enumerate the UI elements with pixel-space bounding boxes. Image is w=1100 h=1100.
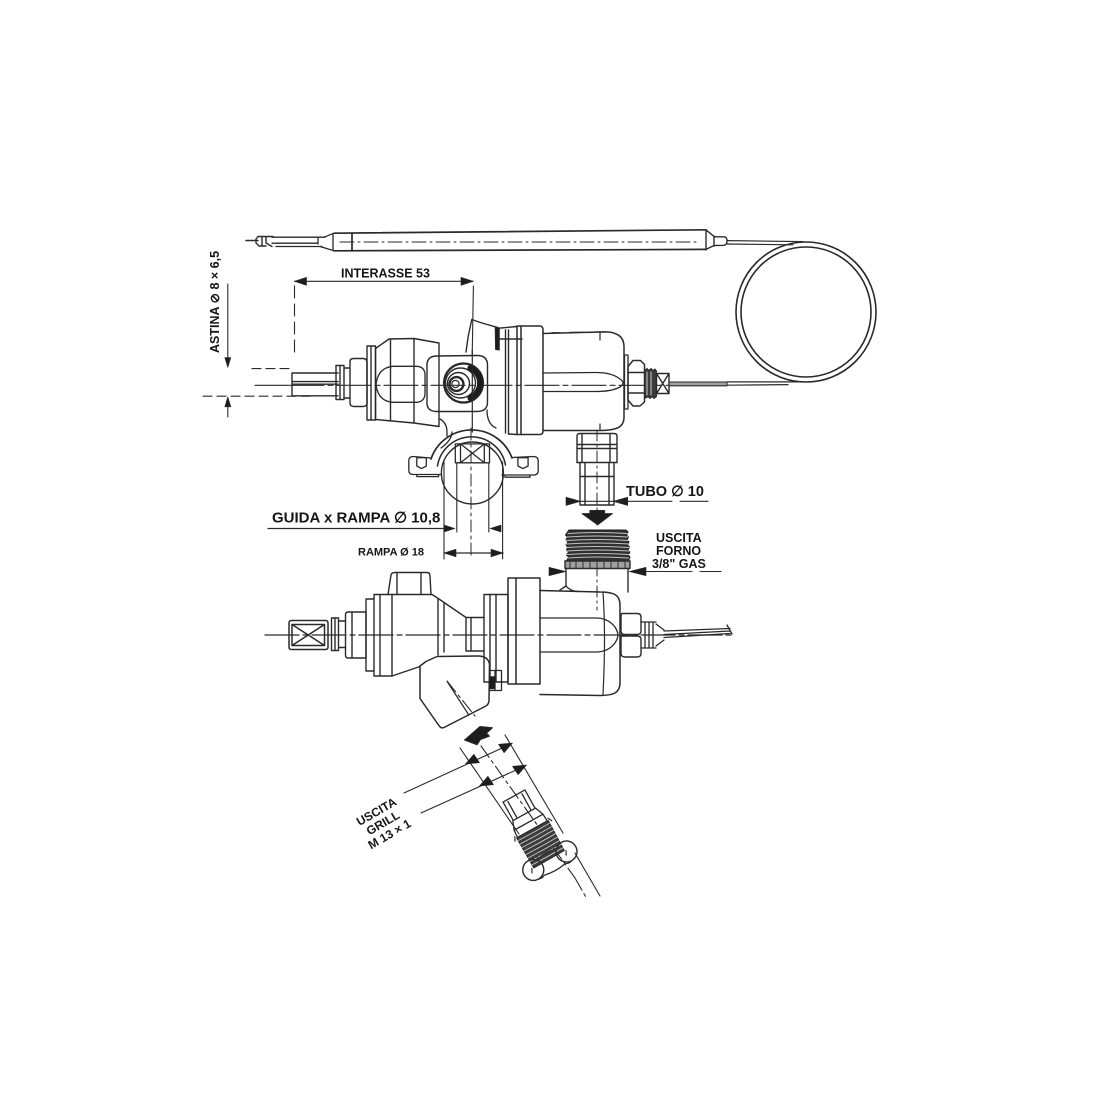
svg-text:GUIDA x RAMPA ∅ 10,8: GUIDA x RAMPA ∅ 10,8: [272, 510, 440, 527]
svg-text:FORNO: FORNO: [656, 544, 701, 558]
svg-text:INTERASSE 53: INTERASSE 53: [341, 267, 430, 281]
svg-text:RAMPA Ø 18: RAMPA Ø 18: [358, 547, 424, 559]
svg-text:USCITA: USCITA: [656, 531, 702, 545]
svg-text:ASTINA ⊘ 8 × 6,5: ASTINA ⊘ 8 × 6,5: [208, 251, 222, 353]
svg-text:3/8" GAS: 3/8" GAS: [652, 557, 706, 571]
svg-text:TUBO ∅ 10: TUBO ∅ 10: [626, 484, 704, 500]
